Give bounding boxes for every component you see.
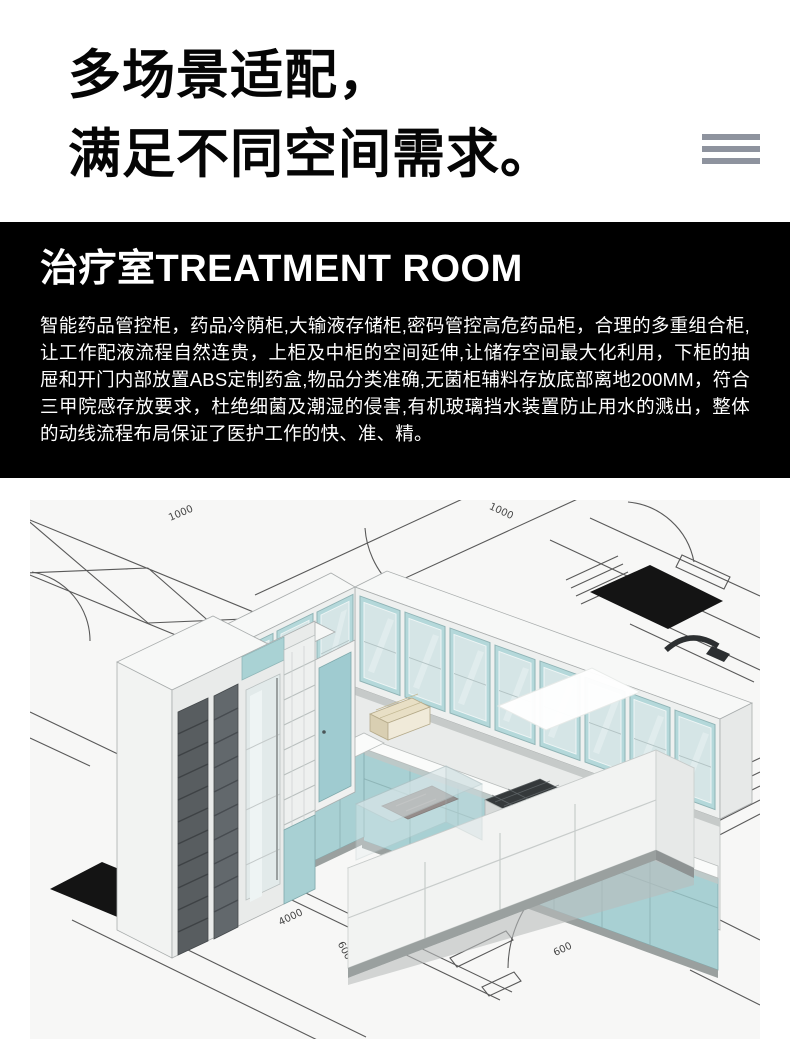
hamburger-lines-icon [702,134,760,164]
hero-section: 多场景适配， 满足不同空间需求。 [0,0,790,222]
menu-bar [702,134,760,140]
hero-title-line2: 满足不同空间需求。 [68,125,554,184]
hero-title: 多场景适配， 满足不同空间需求。 [68,36,790,194]
pegboard-bin-column [284,635,315,904]
menu-bar [702,158,760,164]
corner-tall-door [315,640,355,812]
feature-panel-body: 智能药品管控柜，药品冷荫柜,大输液存储柜,密码管控高危药品柜，合理的多重组合柜,… [40,312,750,447]
feature-panel: 治疗室TREATMENT ROOM 智能药品管控柜，药品冷荫柜,大输液存储柜,密… [0,222,790,478]
render-section: 1000 1000 7050 650 700 750 4000 600 600 … [0,478,790,1039]
treatment-room-render: 1000 1000 7050 650 700 750 4000 600 600 … [30,500,760,1039]
menu-bar [702,146,760,152]
trolley-cabinet-dark [178,684,238,955]
feature-panel-title: 治疗室TREATMENT ROOM [40,246,750,292]
hero-title-line1: 多场景适配， [68,46,392,105]
